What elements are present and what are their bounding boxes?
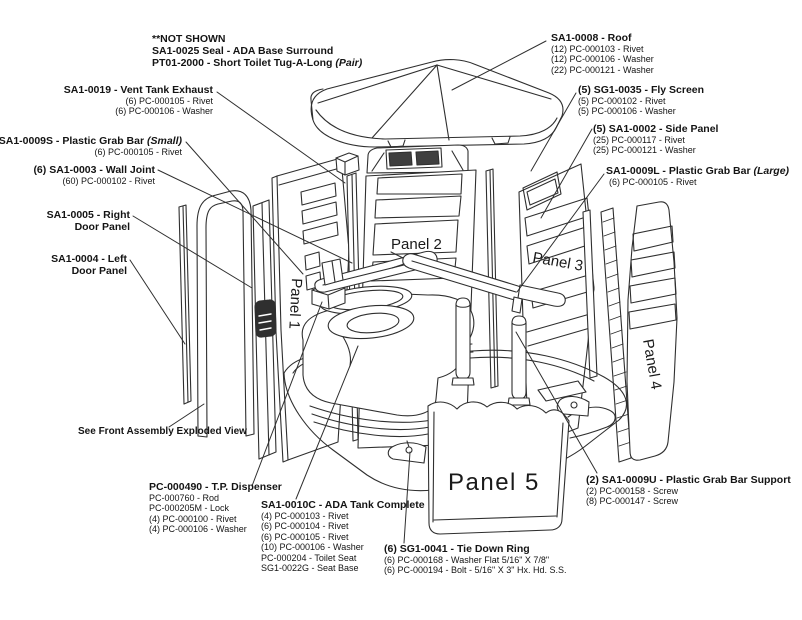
part-title: PC-000490 - T.P. Dispenser bbox=[149, 481, 282, 493]
panel-2-label: Panel 2 bbox=[391, 236, 442, 253]
callout-vent-exhaust: SA1-0019 - Vent Tank Exhaust (6) PC-0001… bbox=[64, 84, 213, 117]
part-sub: (5) PC-000106 - Washer bbox=[578, 106, 704, 116]
part-title: (5) SG1-0035 - Fly Screen bbox=[578, 84, 704, 96]
part-sub: (6) PC-000105 - Rivet bbox=[0, 147, 182, 157]
part-sub: (25) PC-000121 - Washer bbox=[593, 145, 718, 155]
panel-1-label: Panel 1 bbox=[285, 278, 305, 330]
callout-grab-bar-support: (2) SA1-0009U - Plastic Grab Bar Support… bbox=[586, 474, 791, 507]
callout-roof: SA1-0008 - Roof (12) PC-000103 - Rivet (… bbox=[551, 32, 654, 75]
note-line: SA1-0025 Seal - ADA Base Surround bbox=[152, 45, 362, 57]
part-title: SA1-0005 - Right bbox=[47, 209, 130, 221]
part-title: (2) SA1-0009U - Plastic Grab Bar Support bbox=[586, 474, 791, 486]
part-title: (6) SA1-0003 - Wall Joint bbox=[33, 164, 155, 176]
vent-exhaust-drawing bbox=[336, 153, 359, 175]
panel-5-label: Panel 5 bbox=[448, 469, 540, 496]
part-sub: (6) PC-000105 - Rivet bbox=[261, 532, 425, 542]
part-sub: (2) PC-000158 - Screw bbox=[586, 486, 791, 496]
part-title: SA1-0019 - Vent Tank Exhaust bbox=[64, 84, 213, 96]
part-sub: (5) PC-000102 - Rivet bbox=[578, 96, 704, 106]
leader-left-door bbox=[130, 260, 185, 344]
part-sub: (6) PC-000194 - Bolt - 5/16" X 3" Hx. Hd… bbox=[384, 565, 566, 575]
leader-right-door bbox=[133, 216, 252, 288]
part-sub: (6) PC-000105 - Rivet bbox=[64, 96, 213, 106]
part-title: Door Panel bbox=[47, 221, 130, 233]
part-title: Door Panel bbox=[51, 265, 127, 277]
callout-fly-screen: (5) SG1-0035 - Fly Screen (5) PC-000102 … bbox=[578, 84, 704, 117]
part-title: (5) SA1-0002 - Side Panel bbox=[593, 123, 718, 135]
part-sub: (12) PC-000106 - Washer bbox=[551, 54, 654, 64]
panel4-drawing bbox=[627, 202, 677, 460]
door-frame bbox=[197, 191, 254, 437]
part-sub: (8) PC-000147 - Screw bbox=[586, 496, 791, 506]
note-see-front: See Front Assembly Exploded View bbox=[78, 426, 247, 438]
part-title: SA1-0009L - Plastic Grab Bar (Large) bbox=[606, 165, 789, 177]
callout-grab-bar-small: SA1-0009S - Plastic Grab Bar (Small) (6)… bbox=[0, 135, 182, 157]
part-title: (6) SG1-0041 - Tie Down Ring bbox=[384, 543, 566, 555]
part-sub: (6) PC-000104 - Rivet bbox=[261, 521, 425, 531]
door-badge bbox=[255, 300, 276, 337]
note-line: **NOT SHOWN bbox=[152, 33, 362, 45]
callout-tie-down-ring: (6) SG1-0041 - Tie Down Ring (6) PC-0001… bbox=[384, 543, 566, 576]
note-line: PT01-2000 - Short Toilet Tug-A-Long (Pai… bbox=[152, 57, 362, 69]
callout-grab-bar-large: SA1-0009L - Plastic Grab Bar (Large) (6)… bbox=[606, 165, 789, 187]
part-sub: (22) PC-000121 - Washer bbox=[551, 65, 654, 75]
callout-side-panel: (5) SA1-0002 - Side Panel (25) PC-000117… bbox=[593, 123, 718, 156]
note-not-shown: **NOT SHOWN SA1-0025 Seal - ADA Base Sur… bbox=[152, 33, 362, 69]
part-sub: (6) PC-000105 - Rivet bbox=[606, 177, 789, 187]
part-title: SA1-0004 - Left bbox=[51, 253, 127, 265]
part-sub: (25) PC-000117 - Rivet bbox=[593, 135, 718, 145]
part-sub: (6) PC-000106 - Washer bbox=[64, 106, 213, 116]
part-sub: (6) PC-000168 - Washer Flat 5/16" X 7/8" bbox=[384, 555, 566, 565]
roof-drawing bbox=[311, 60, 563, 147]
callout-left-door: SA1-0004 - Left Door Panel bbox=[51, 253, 127, 277]
part-title: SA1-0009S - Plastic Grab Bar (Small) bbox=[0, 135, 182, 147]
part-sub: (4) PC-000103 - Rivet bbox=[261, 511, 425, 521]
part-title: SA1-0010C - ADA Tank Complete bbox=[261, 499, 425, 511]
part-sub: (60) PC-000102 - Rivet bbox=[33, 176, 155, 186]
part-sub: (12) PC-000103 - Rivet bbox=[551, 44, 654, 54]
part-title: SA1-0008 - Roof bbox=[551, 32, 654, 44]
exploded-parts-diagram: Panel 1 Panel 2 Panel 3 Panel 4 Panel 5 … bbox=[0, 0, 802, 620]
note-line: See Front Assembly Exploded View bbox=[78, 426, 247, 438]
door-panels-drawing bbox=[179, 191, 276, 459]
callout-wall-joint: (6) SA1-0003 - Wall Joint (60) PC-000102… bbox=[33, 164, 155, 186]
callout-right-door: SA1-0005 - Right Door Panel bbox=[47, 209, 130, 233]
